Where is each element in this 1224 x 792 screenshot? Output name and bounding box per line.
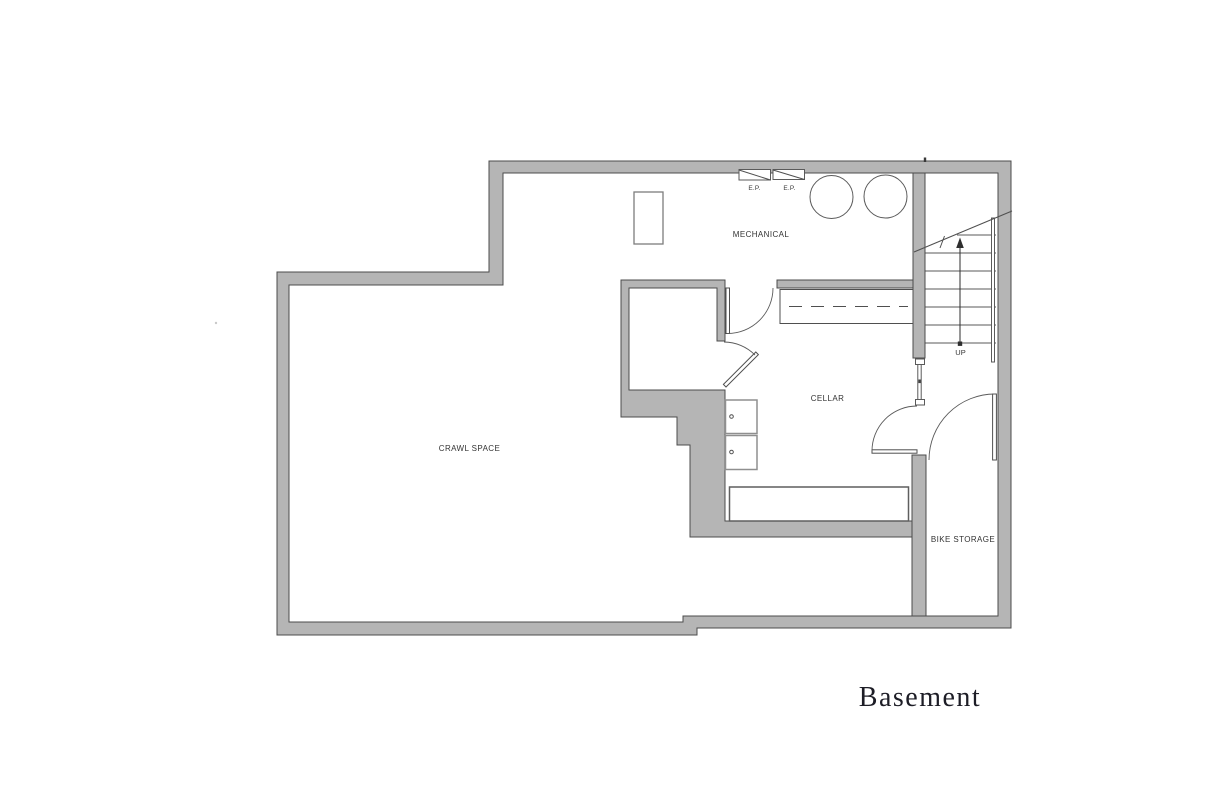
up-arrow-tail-dot bbox=[958, 342, 962, 346]
mechanical-door-leaf bbox=[726, 288, 730, 334]
doors bbox=[723, 288, 996, 460]
wall-stair-divider bbox=[913, 173, 925, 358]
window-cap-bottom bbox=[916, 400, 925, 406]
label-cellar: CELLAR bbox=[811, 394, 845, 403]
tank-circle-1 bbox=[810, 176, 853, 219]
small-room-door-swing bbox=[724, 342, 755, 355]
ep-label-1: E.P. bbox=[748, 185, 760, 192]
mechanical-room: E.P. E.P. MECHANICAL bbox=[634, 170, 907, 245]
cellar-door-swing bbox=[872, 406, 917, 451]
label-bike-storage: BIKE STORAGE bbox=[931, 535, 995, 544]
cellar-room: CELLAR bbox=[726, 290, 914, 522]
stair-handrail bbox=[992, 218, 995, 362]
workbench bbox=[730, 487, 909, 521]
stair-break-tick bbox=[940, 236, 945, 248]
floor-plan-page: E.P. E.P. MECHANICAL bbox=[0, 0, 1224, 792]
window-cap-top bbox=[916, 359, 925, 365]
up-arrow-head bbox=[956, 238, 964, 249]
cellar-door-leaf bbox=[872, 450, 917, 453]
equipment-rect bbox=[634, 192, 663, 244]
wall-bike-storage-west bbox=[912, 455, 926, 616]
wall-mechanical-south bbox=[777, 280, 913, 288]
plan-title: Basement bbox=[859, 682, 981, 713]
label-mechanical: MECHANICAL bbox=[733, 230, 790, 239]
up-arrow bbox=[956, 238, 964, 346]
staircase: UP bbox=[914, 211, 1012, 362]
window-mullion bbox=[918, 380, 921, 384]
floor-plan-svg: E.P. E.P. MECHANICAL bbox=[0, 0, 1224, 792]
electrical-panel-1: E.P. bbox=[739, 170, 771, 193]
mechanical-door-swing bbox=[728, 288, 774, 334]
window-panel bbox=[916, 359, 925, 405]
bike-storage-door-swing bbox=[929, 394, 995, 460]
electrical-panel-2: E.P. bbox=[773, 170, 805, 193]
stray-dot bbox=[215, 322, 217, 324]
cabinet-1 bbox=[726, 400, 758, 434]
label-crawl-space: CRAWL SPACE bbox=[439, 444, 500, 453]
small-room-door-leaf bbox=[723, 352, 758, 387]
bike-storage-door-leaf bbox=[993, 394, 997, 460]
label-up: UP bbox=[955, 348, 965, 357]
tank-circle-2 bbox=[864, 175, 907, 218]
ep-label-2: E.P. bbox=[783, 185, 795, 192]
